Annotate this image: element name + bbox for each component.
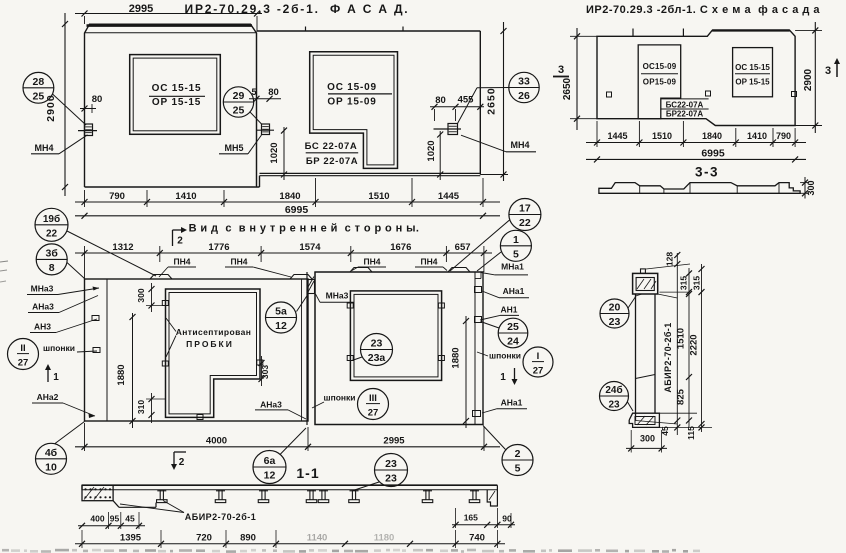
- svg-text:400: 400: [90, 514, 104, 524]
- svg-text:29: 29: [233, 90, 245, 102]
- svg-text:1776: 1776: [208, 242, 229, 253]
- svg-text:МНа3: МНа3: [31, 284, 54, 294]
- svg-text:Антисептирован: Антисептирован: [176, 327, 252, 337]
- svg-text:25: 25: [33, 90, 45, 102]
- svg-text:790: 790: [109, 191, 125, 202]
- svg-text:1410: 1410: [747, 131, 767, 141]
- svg-text:3-3: 3-3: [695, 165, 719, 180]
- svg-text:1395: 1395: [120, 533, 142, 544]
- svg-text:АН1: АН1: [500, 305, 517, 315]
- svg-text:1574: 1574: [299, 242, 321, 253]
- svg-text:90: 90: [502, 514, 512, 524]
- svg-text:ОР15-09: ОР15-09: [643, 78, 677, 87]
- svg-text:БС 22-07А: БС 22-07А: [305, 141, 358, 152]
- svg-text:23: 23: [609, 316, 621, 328]
- svg-text:115: 115: [686, 426, 696, 440]
- svg-text:80: 80: [268, 87, 279, 98]
- svg-text:45: 45: [125, 514, 135, 524]
- svg-text:2900: 2900: [45, 94, 57, 121]
- svg-text:ОС 15-15: ОС 15-15: [735, 63, 770, 72]
- svg-text:17: 17: [519, 203, 531, 215]
- svg-text:300: 300: [136, 288, 146, 302]
- svg-text:ОР 15-15: ОР 15-15: [152, 97, 201, 108]
- svg-text:1840: 1840: [279, 191, 300, 202]
- svg-text:2: 2: [177, 236, 183, 247]
- svg-text:3: 3: [825, 65, 831, 77]
- svg-text:1510: 1510: [368, 191, 389, 202]
- svg-text:4б: 4б: [45, 447, 58, 459]
- svg-text:1410: 1410: [175, 191, 196, 202]
- svg-text:1510: 1510: [676, 328, 687, 349]
- svg-text:740: 740: [469, 533, 485, 544]
- svg-text:2650: 2650: [486, 87, 498, 114]
- svg-text:ОС15-09: ОС15-09: [643, 62, 677, 71]
- svg-text:АНа3: АНа3: [32, 302, 54, 312]
- svg-text:МН4: МН4: [34, 143, 53, 153]
- svg-text:23: 23: [385, 473, 397, 485]
- svg-text:ОР 15-15: ОР 15-15: [735, 78, 770, 87]
- svg-text:720: 720: [196, 533, 212, 544]
- svg-text:300: 300: [640, 434, 655, 444]
- svg-text:1020: 1020: [269, 142, 280, 163]
- svg-text:АН3: АН3: [34, 322, 51, 332]
- svg-text:23: 23: [385, 458, 397, 470]
- svg-text:БР22-07А: БР22-07А: [666, 110, 704, 119]
- svg-text:2220: 2220: [689, 334, 700, 355]
- svg-text:24б: 24б: [605, 384, 622, 396]
- svg-text:10: 10: [45, 461, 57, 473]
- svg-text:1312: 1312: [112, 242, 133, 253]
- svg-text:1880: 1880: [116, 364, 127, 385]
- svg-text:6а: 6а: [264, 455, 276, 467]
- svg-text:657: 657: [455, 242, 471, 253]
- svg-text:6995: 6995: [701, 148, 725, 160]
- svg-text:33: 33: [518, 76, 530, 88]
- svg-text:МНа3: МНа3: [326, 291, 349, 301]
- svg-text:ИР2-70.29.3 -2бл-1. С х е м а: ИР2-70.29.3 -2бл-1. С х е м а ф а с а д …: [586, 4, 820, 16]
- svg-text:1: 1: [500, 372, 506, 383]
- svg-text:II: II: [20, 343, 25, 354]
- svg-text:1180: 1180: [374, 533, 395, 544]
- svg-text:8: 8: [49, 262, 55, 274]
- svg-text:26: 26: [518, 90, 530, 102]
- svg-text:20: 20: [609, 302, 621, 314]
- svg-text:27: 27: [18, 358, 29, 369]
- svg-text:3б: 3б: [46, 248, 59, 260]
- svg-text:МН4: МН4: [510, 140, 529, 150]
- svg-text:БР 22-07А: БР 22-07А: [306, 156, 358, 167]
- svg-text:шпонки: шпонки: [489, 351, 521, 361]
- svg-text:1020: 1020: [426, 140, 437, 161]
- svg-text:БС22-07А: БС22-07А: [666, 100, 704, 109]
- svg-text:1445: 1445: [607, 131, 627, 141]
- svg-text:АНа3: АНа3: [260, 400, 282, 410]
- svg-text:шпонки: шпонки: [43, 343, 75, 353]
- svg-text:23: 23: [608, 400, 620, 411]
- svg-text:6995: 6995: [285, 204, 309, 216]
- svg-text:ОС 15-09: ОС 15-09: [327, 82, 377, 93]
- svg-text:ОС 15-15: ОС 15-15: [152, 83, 202, 94]
- svg-text:III: III: [369, 393, 377, 404]
- svg-text:ПН4: ПН4: [231, 257, 248, 267]
- svg-text:23: 23: [371, 338, 383, 350]
- svg-text:22: 22: [519, 217, 531, 229]
- svg-text:28: 28: [33, 76, 45, 88]
- svg-text:25: 25: [233, 105, 245, 117]
- svg-text:АНа2: АНа2: [37, 392, 59, 402]
- svg-text:12: 12: [264, 470, 276, 482]
- svg-text:1445: 1445: [438, 191, 460, 202]
- svg-text:2900: 2900: [803, 68, 814, 91]
- svg-text:1880: 1880: [451, 347, 462, 368]
- svg-text:МНа1: МНа1: [501, 262, 524, 272]
- svg-text:825: 825: [676, 388, 687, 405]
- svg-text:315: 315: [692, 276, 702, 290]
- svg-text:890: 890: [240, 533, 256, 544]
- svg-text:1840: 1840: [702, 131, 722, 141]
- svg-text:1: 1: [53, 372, 59, 383]
- svg-text:ОР 15-09: ОР 15-09: [327, 97, 376, 108]
- svg-text:ПН4: ПН4: [421, 257, 438, 267]
- svg-text:455: 455: [458, 95, 475, 106]
- svg-text:790: 790: [776, 131, 791, 141]
- svg-text:АНа1: АНа1: [501, 398, 523, 408]
- svg-text:шпонки: шпонки: [323, 393, 355, 403]
- svg-text:ПН4: ПН4: [364, 257, 381, 267]
- svg-text:АНа1: АНа1: [503, 286, 525, 296]
- svg-text:5: 5: [515, 463, 521, 475]
- svg-text:310: 310: [136, 400, 146, 414]
- svg-text:АБИР2-70-2б-1: АБИР2-70-2б-1: [185, 512, 257, 522]
- svg-text:12: 12: [275, 320, 287, 332]
- svg-text:I: I: [537, 351, 540, 362]
- svg-text:19б: 19б: [43, 213, 60, 225]
- svg-text:1-1: 1-1: [296, 465, 319, 481]
- svg-text:3: 3: [558, 64, 564, 76]
- svg-text:5а: 5а: [275, 306, 287, 318]
- svg-text:27: 27: [533, 366, 544, 377]
- svg-text:2: 2: [515, 448, 521, 460]
- svg-text:5: 5: [513, 248, 519, 260]
- svg-text:ПН4: ПН4: [174, 257, 191, 267]
- svg-text:24: 24: [507, 336, 519, 348]
- svg-text:ПРОБКИ: ПРОБКИ: [186, 339, 234, 349]
- svg-text:2995: 2995: [129, 3, 153, 15]
- svg-text:300: 300: [806, 180, 816, 195]
- svg-text:27: 27: [368, 408, 379, 419]
- svg-text:4000: 4000: [206, 436, 227, 447]
- svg-text:80: 80: [92, 94, 103, 105]
- svg-text:2995: 2995: [383, 436, 405, 447]
- svg-text:В и д с в н у т р е н н е й: В и д с в н у т р е н н е й с т о р о н …: [189, 223, 420, 235]
- svg-text:1140: 1140: [307, 533, 328, 544]
- svg-text:22: 22: [46, 228, 58, 239]
- svg-text:23а: 23а: [368, 352, 386, 364]
- svg-text:128: 128: [665, 252, 675, 266]
- svg-text:95: 95: [110, 514, 120, 524]
- svg-text:1510: 1510: [652, 131, 672, 141]
- svg-text:165: 165: [464, 513, 478, 523]
- svg-text:1: 1: [513, 234, 519, 246]
- svg-text:МН5: МН5: [224, 143, 243, 153]
- svg-text:2: 2: [179, 457, 185, 468]
- svg-text:1676: 1676: [390, 242, 411, 253]
- svg-text:25: 25: [507, 321, 519, 333]
- svg-text:АБИР2-70-2б-1: АБИР2-70-2б-1: [663, 322, 673, 392]
- svg-text:315: 315: [679, 276, 689, 290]
- svg-text:2650: 2650: [562, 77, 573, 100]
